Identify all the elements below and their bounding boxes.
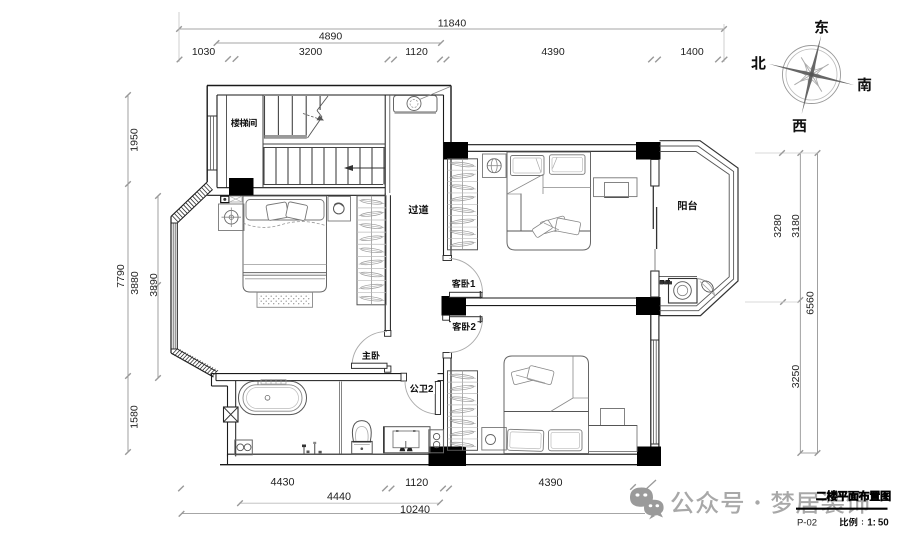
svg-text:3880: 3880 xyxy=(129,271,141,295)
svg-text:6560: 6560 xyxy=(805,291,817,315)
svg-text:1030: 1030 xyxy=(192,46,216,58)
svg-text:3280: 3280 xyxy=(772,214,784,238)
svg-text:2: 2 xyxy=(428,384,433,395)
svg-text:11840: 11840 xyxy=(438,18,467,30)
svg-text:P-02: P-02 xyxy=(797,517,817,528)
svg-text:2: 2 xyxy=(471,322,476,333)
svg-text:1580: 1580 xyxy=(129,405,141,429)
svg-text:10240: 10240 xyxy=(400,504,430,516)
svg-text:1400: 1400 xyxy=(680,46,704,58)
svg-text:1: 1 xyxy=(470,279,476,290)
svg-text:1950: 1950 xyxy=(129,128,141,152)
svg-text:3200: 3200 xyxy=(299,46,323,58)
svg-text::: : xyxy=(873,517,876,528)
svg-text:7790: 7790 xyxy=(115,264,127,288)
svg-text:4390: 4390 xyxy=(541,46,565,58)
svg-text:3180: 3180 xyxy=(790,214,802,238)
svg-text:1120: 1120 xyxy=(405,477,428,489)
svg-text:4430: 4430 xyxy=(270,476,294,488)
svg-text:0: 0 xyxy=(883,517,889,528)
svg-text:1120: 1120 xyxy=(405,46,428,58)
svg-text:4390: 4390 xyxy=(538,477,562,489)
svg-text:4890: 4890 xyxy=(319,31,343,43)
svg-text:3250: 3250 xyxy=(790,365,802,389)
svg-text:3890: 3890 xyxy=(148,273,160,297)
svg-text:4440: 4440 xyxy=(327,491,351,503)
